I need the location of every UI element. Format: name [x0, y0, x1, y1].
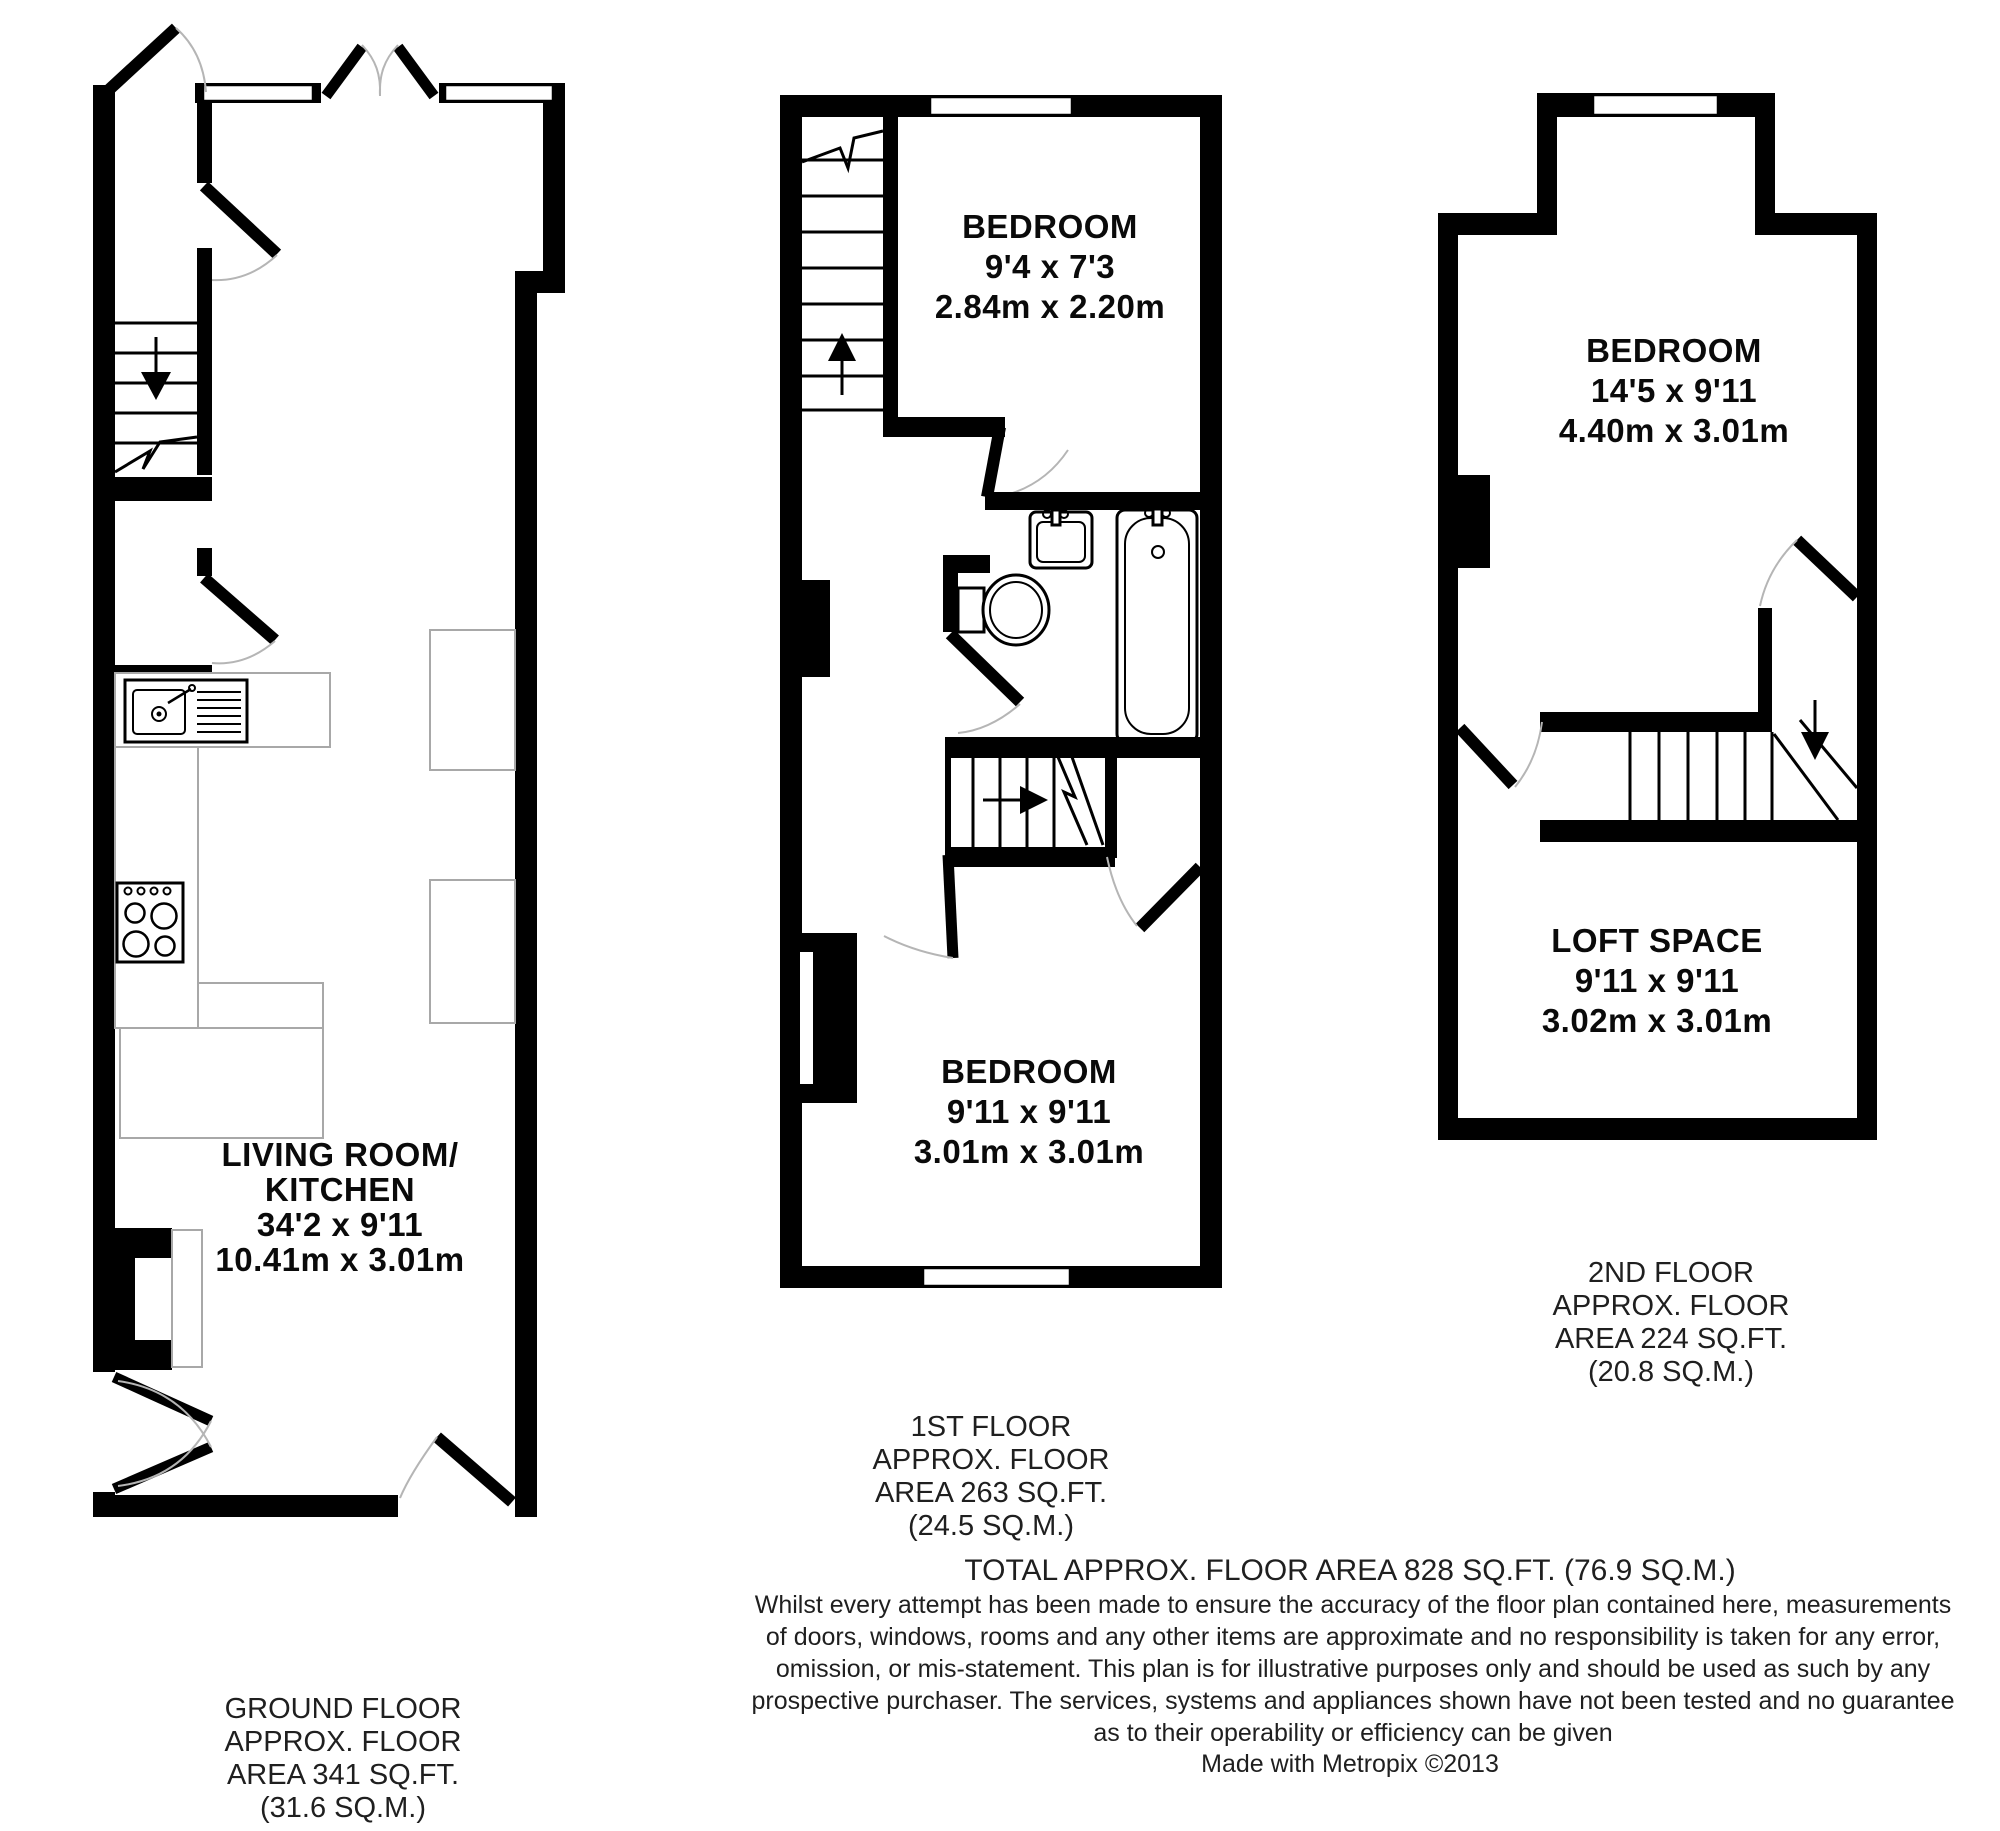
- disclaimer-line: as to their operability or efficiency ca…: [751, 1717, 1954, 1749]
- door-leaf: [1797, 540, 1857, 597]
- room-size-imperial: 9'11 x 9'11: [914, 1092, 1144, 1132]
- window: [445, 85, 553, 101]
- floor-label-line: (24.5 SQ.M.): [873, 1510, 1110, 1543]
- wall: [883, 417, 1005, 437]
- door-swing-arc: [1515, 722, 1542, 787]
- room-size-metric: 10.41m x 3.01m: [215, 1242, 464, 1277]
- floor-label-line: APPROX. FLOOR: [1553, 1290, 1790, 1323]
- floor-label-line: AREA 224 SQ.FT.: [1553, 1323, 1790, 1356]
- room-size-metric: 3.01m x 3.01m: [914, 1132, 1144, 1172]
- stove-icon: [117, 883, 183, 962]
- stair-break-line: [802, 131, 883, 168]
- window: [930, 97, 1072, 115]
- room-label-bedroom-first-top: BEDROOM 9'4 x 7'3 2.84m x 2.20m: [935, 207, 1165, 327]
- french-doors: [114, 1377, 211, 1489]
- wall-stub: [197, 103, 212, 183]
- room-name: LOFT SPACE: [1542, 921, 1772, 961]
- metropix-credit: Made with Metropix ©2013: [1201, 1750, 1499, 1779]
- room-name: KITCHEN: [215, 1172, 464, 1207]
- room-name: LIVING ROOM/: [215, 1137, 464, 1172]
- window: [1593, 95, 1718, 115]
- staircase: [802, 115, 898, 420]
- door-leaf: [987, 427, 1000, 497]
- stair-direction-arrow: [828, 333, 856, 395]
- floor-label-line: AREA 263 SQ.FT.: [873, 1477, 1110, 1510]
- kitchen-sink-icon: [125, 680, 247, 742]
- window: [203, 85, 313, 101]
- wall-stub: [197, 548, 212, 576]
- floor-label-ground: GROUND FLOOR APPROX. FLOOR AREA 341 SQ.F…: [225, 1693, 462, 1825]
- disclaimer-line: of doors, windows, rooms and any other i…: [751, 1621, 1954, 1653]
- door-swing-arc: [211, 255, 277, 280]
- bathtub-icon: [1117, 509, 1197, 742]
- wall: [985, 492, 1200, 510]
- door-leaf: [948, 855, 953, 958]
- stair-break-line: [1058, 757, 1087, 845]
- ground-floor-plan: [92, 28, 565, 1517]
- wash-basin-icon: [1030, 510, 1092, 568]
- room-label-bedroom-first-bottom: BEDROOM 9'11 x 9'11 3.01m x 3.01m: [914, 1052, 1144, 1172]
- staircase: [1540, 608, 1877, 842]
- door-leaf: [437, 1437, 512, 1502]
- total-floor-area: TOTAL APPROX. FLOOR AREA 828 SQ.FT. (76.…: [964, 1554, 1735, 1588]
- chimney-breast: [800, 580, 830, 677]
- room-size-imperial: 14'5 x 9'11: [1559, 371, 1789, 411]
- door-swing-arc: [884, 936, 953, 958]
- winder-tread: [1774, 734, 1838, 820]
- chimney-breast: [115, 1228, 172, 1370]
- window: [923, 1268, 1070, 1286]
- room-name: BEDROOM: [935, 207, 1165, 247]
- chimney-breast: [1458, 475, 1490, 568]
- furniture: [430, 630, 515, 770]
- furniture: [120, 1028, 323, 1138]
- kitchen-counter: [198, 983, 323, 1028]
- room-name: BEDROOM: [914, 1052, 1144, 1092]
- door-swing-arc: [400, 1437, 437, 1498]
- room-size-imperial: 9'4 x 7'3: [935, 247, 1165, 287]
- door-swing-arc: [1760, 540, 1797, 606]
- stair-direction-arrow: [141, 337, 171, 400]
- radiator: [172, 1230, 202, 1367]
- room-label-bedroom-second: BEDROOM 14'5 x 9'11 4.40m x 3.01m: [1559, 331, 1789, 451]
- door-opening: [92, 1372, 116, 1492]
- floor-label-line: APPROX. FLOOR: [873, 1444, 1110, 1477]
- floor-label-line: (31.6 SQ.M.): [225, 1792, 462, 1825]
- winder-tread: [1800, 720, 1857, 788]
- staircase: [115, 248, 212, 501]
- door-swing-arc: [176, 28, 206, 92]
- door-leaf: [204, 578, 275, 640]
- door-swing-arc: [212, 641, 275, 663]
- floor-label-line: 1ST FLOOR: [873, 1411, 1110, 1444]
- room-name: BEDROOM: [1559, 331, 1789, 371]
- disclaimer-line: Whilst every attempt has been made to en…: [751, 1589, 1954, 1621]
- floor-label-first: 1ST FLOOR APPROX. FLOOR AREA 263 SQ.FT. …: [873, 1411, 1110, 1543]
- door-swing-arc: [1107, 857, 1137, 926]
- floor-label-line: APPROX. FLOOR: [225, 1726, 462, 1759]
- door-leaf: [204, 186, 277, 254]
- floor-label-line: 2ND FLOOR: [1553, 1257, 1790, 1290]
- angled-entrance-wall: [100, 28, 176, 98]
- room-size-imperial: 34'2 x 9'11: [215, 1207, 464, 1242]
- floor-label-line: AREA 341 SQ.FT.: [225, 1759, 462, 1792]
- room-label-loft-space: LOFT SPACE 9'11 x 9'11 3.02m x 3.01m: [1542, 921, 1772, 1041]
- stair-direction-arrow: [983, 786, 1048, 814]
- disclaimer: Whilst every attempt has been made to en…: [751, 1589, 1954, 1749]
- wall: [945, 737, 1200, 758]
- door-leaf: [1140, 867, 1200, 928]
- room-label-living-room-kitchen: LIVING ROOM/ KITCHEN 34'2 x 9'11 10.41m …: [215, 1137, 464, 1277]
- room-size-metric: 4.40m x 3.01m: [1559, 411, 1789, 451]
- door-leaf: [1460, 728, 1513, 785]
- floor-label-line: GROUND FLOOR: [225, 1693, 462, 1726]
- room-size-metric: 3.02m x 3.01m: [1542, 1001, 1772, 1041]
- door-swing-arc: [958, 704, 1020, 733]
- room-size-imperial: 9'11 x 9'11: [1542, 961, 1772, 1001]
- floor-label-line: (20.8 SQ.M.): [1553, 1356, 1790, 1389]
- disclaimer-line: omission, or mis-statement. This plan is…: [751, 1653, 1954, 1685]
- floor-label-second: 2ND FLOOR APPROX. FLOOR AREA 224 SQ.FT. …: [1553, 1257, 1790, 1389]
- furniture: [430, 880, 515, 1023]
- chimney-breast: [800, 933, 857, 1103]
- room-size-metric: 2.84m x 2.20m: [935, 287, 1165, 327]
- disclaimer-line: prospective purchaser. The services, sys…: [751, 1685, 1954, 1717]
- floorplan-page: LIVING ROOM/ KITCHEN 34'2 x 9'11 10.41m …: [0, 0, 2000, 1831]
